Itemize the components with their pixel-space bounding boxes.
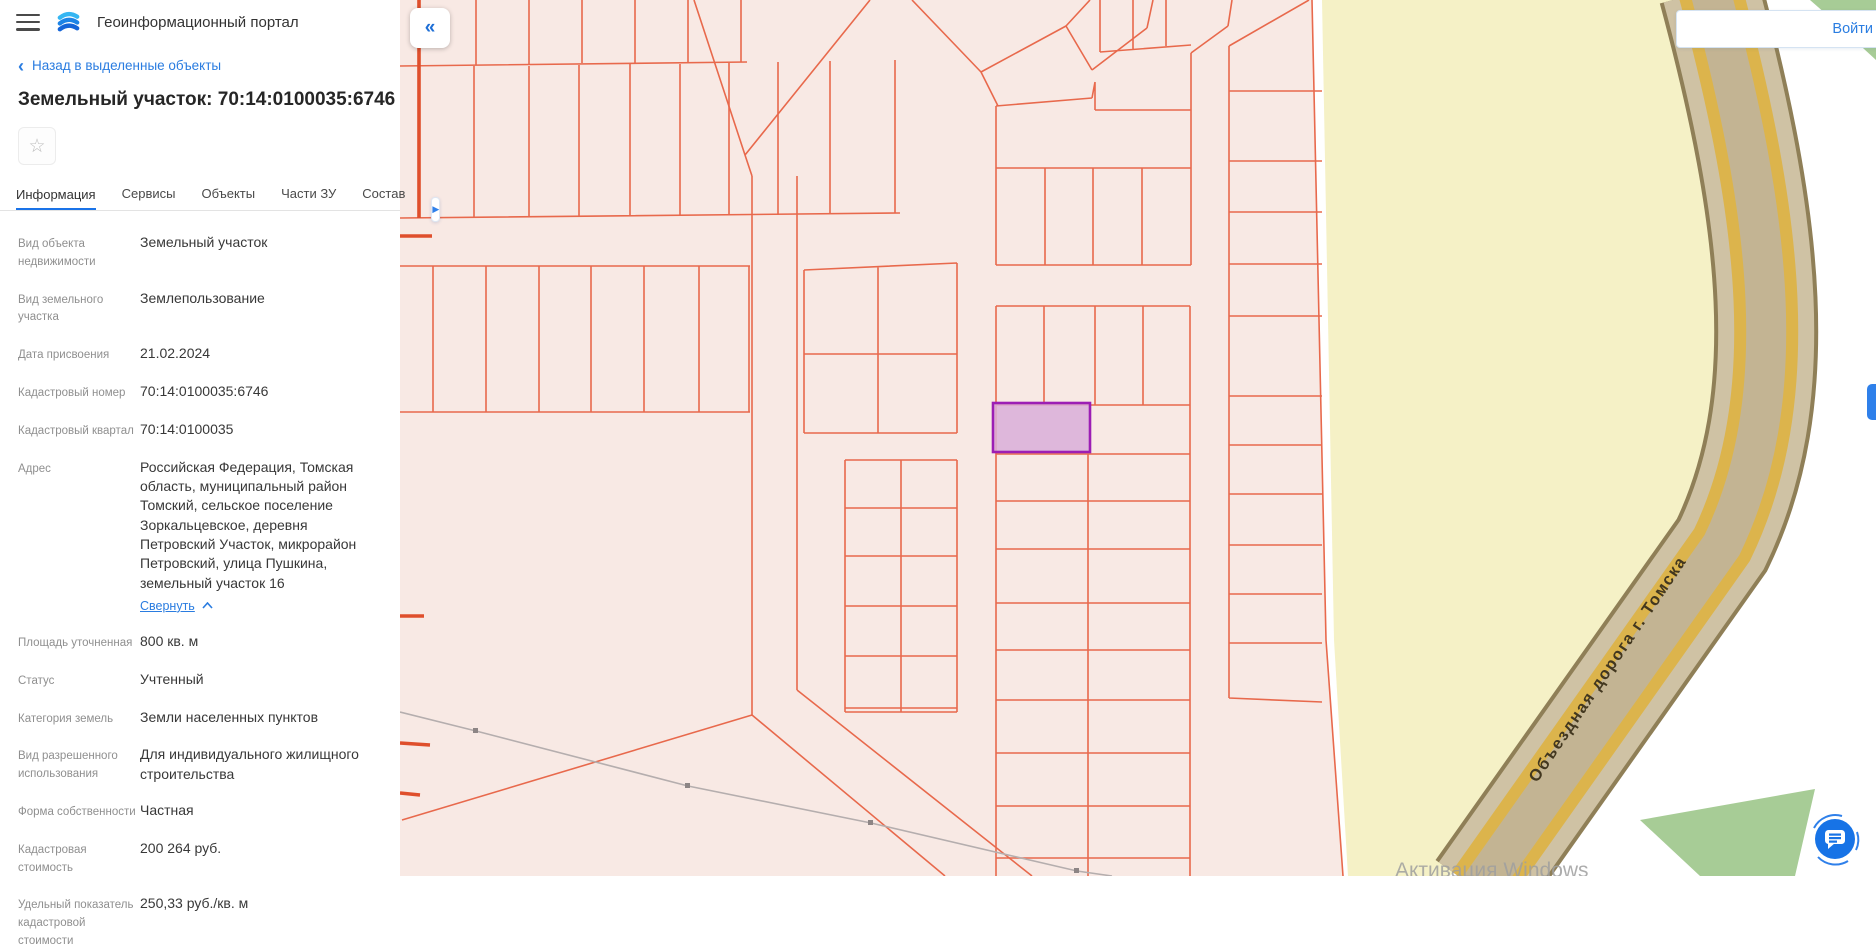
address-collapse-link[interactable]: Свернуть xyxy=(140,599,213,613)
menu-icon[interactable] xyxy=(16,14,40,31)
favorite-button[interactable]: ☆ xyxy=(18,127,56,165)
tab-composition[interactable]: Состав xyxy=(362,186,405,210)
chevron-up-icon xyxy=(202,602,213,609)
tab-information[interactable]: Информация xyxy=(16,187,96,211)
double-chevron-left-icon: « xyxy=(425,17,436,39)
map-viewport[interactable]: Объездная дорога г. Томска « Войти Актив… xyxy=(400,0,1876,876)
info-sidebar: Геоинформационный портал ‹ Назад в выдел… xyxy=(0,0,400,876)
login-button[interactable]: Войти xyxy=(1676,10,1876,48)
star-icon: ☆ xyxy=(28,135,45,158)
field-row: Вид объекта недвижимости Земельный участ… xyxy=(18,233,380,272)
tab-objects[interactable]: Объекты xyxy=(201,186,255,210)
field-row: Кадастровый номер 70:14:0100035:6746 xyxy=(18,382,380,403)
app-logo-icon xyxy=(55,9,82,36)
tab-services[interactable]: Сервисы xyxy=(122,186,176,210)
field-row: Категория земель Земли населенных пункто… xyxy=(18,708,380,729)
back-chevron-icon: ‹ xyxy=(18,60,24,72)
field-row: Форма собственности Частная xyxy=(18,801,380,822)
back-link-label: Назад в выделенные объекты xyxy=(32,58,221,73)
cadastral-map: Объездная дорога г. Томска xyxy=(400,0,1876,876)
tab-bar: Информация Сервисы Объекты Части ЗУ Сост… xyxy=(0,179,400,211)
field-row: Кадастровая стоимость 200 264 руб. xyxy=(18,839,380,878)
right-panel-handle[interactable] xyxy=(1867,384,1876,420)
attributes-list: Вид объекта недвижимости Земельный участ… xyxy=(0,211,400,951)
field-row: Удельный показатель кадастровой стоимост… xyxy=(18,894,380,950)
field-row: Вид земельного участка Землепользование xyxy=(18,289,380,328)
back-link[interactable]: ‹ Назад в выделенные объекты xyxy=(0,58,400,73)
tab-parts[interactable]: Части ЗУ xyxy=(281,186,336,210)
chevron-right-icon: ▶ xyxy=(432,204,439,215)
field-row: Площадь уточненная 800 кв. м xyxy=(18,632,380,653)
cadastral-quarter-area xyxy=(400,0,1343,876)
app-title: Геоинформационный портал xyxy=(97,14,299,31)
selected-parcel[interactable] xyxy=(993,403,1090,452)
field-row: Статус Учтенный xyxy=(18,670,380,691)
collapse-sidebar-button[interactable]: « xyxy=(410,8,450,48)
tabs-scroll-right-button[interactable]: ▶ xyxy=(431,197,440,222)
field-row-address: Адрес Российская Федерация, Томская обла… xyxy=(18,458,380,615)
field-row: Вид разрешенного использования Для индив… xyxy=(18,745,380,784)
windows-activation-watermark: Активация Windows xyxy=(1395,859,1589,876)
app-header: Геоинформационный портал xyxy=(0,0,400,44)
field-row: Дата присвоения 21.02.2024 xyxy=(18,344,380,365)
field-row: Кадастровый квартал 70:14:0100035 xyxy=(18,420,380,441)
chat-widget-button[interactable] xyxy=(1804,808,1866,870)
page-title: Земельный участок: 70:14:0100035:6746 xyxy=(0,89,400,111)
address-value: Российская Федерация, Томская область, м… xyxy=(140,458,380,593)
